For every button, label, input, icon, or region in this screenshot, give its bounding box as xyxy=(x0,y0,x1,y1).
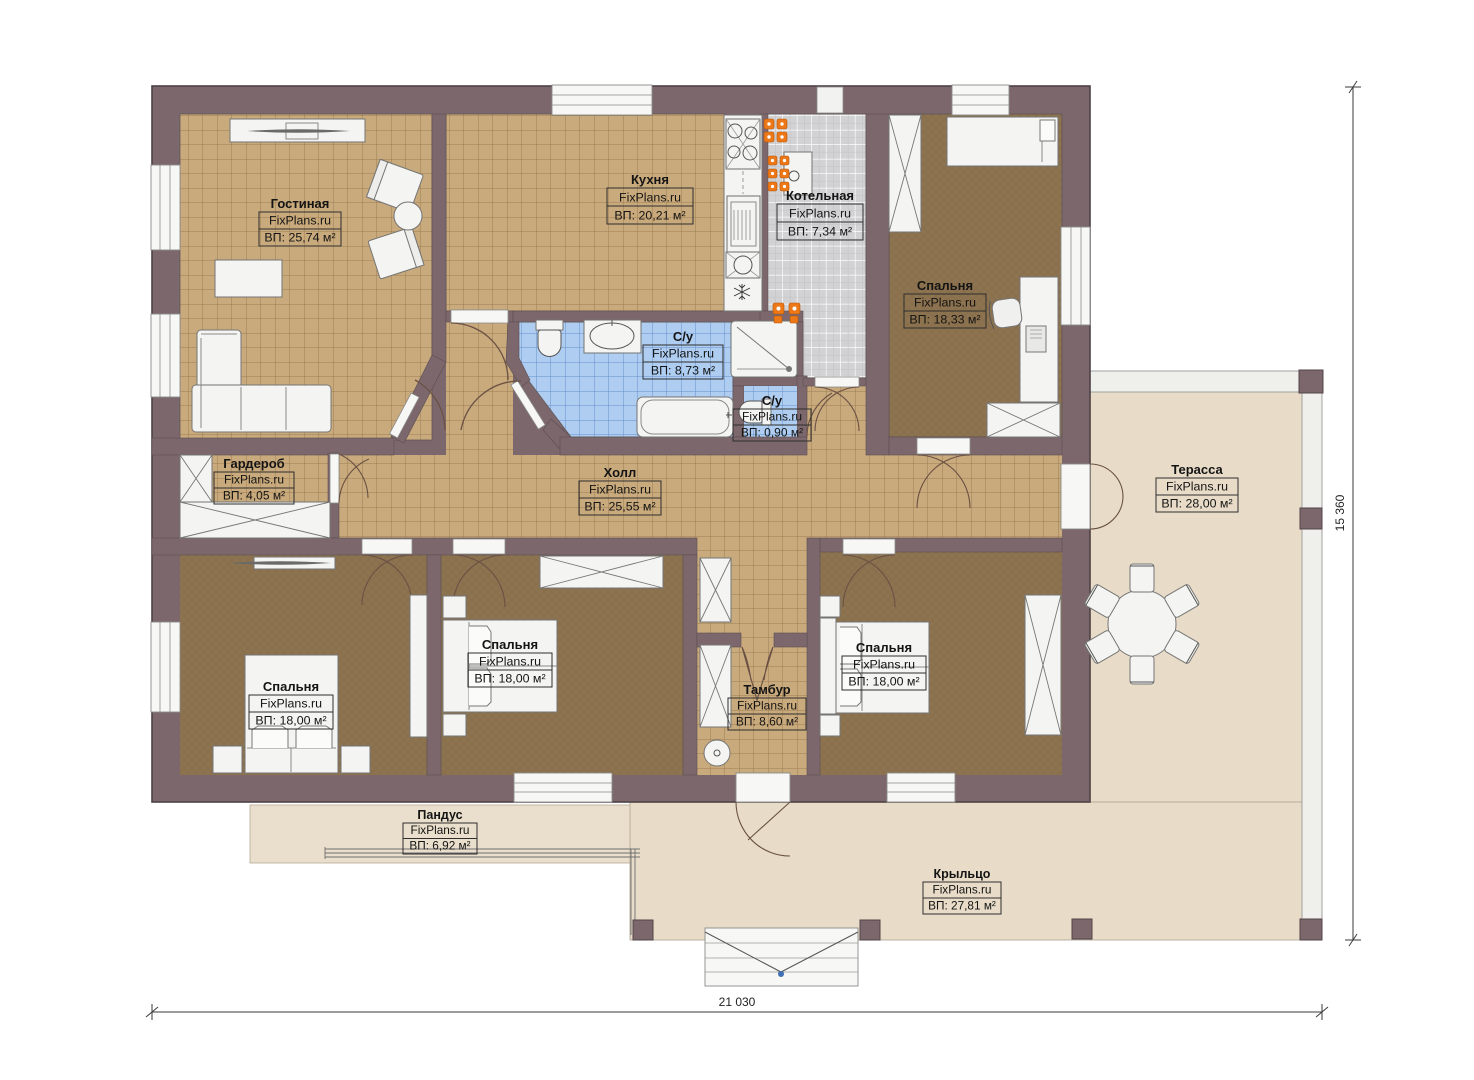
svg-text:FixPlans.ru: FixPlans.ru xyxy=(1166,480,1228,494)
svg-text:FixPlans.ru: FixPlans.ru xyxy=(789,207,851,221)
svg-text:С/у: С/у xyxy=(762,393,783,408)
svg-text:FixPlans.ru: FixPlans.ru xyxy=(589,483,651,497)
svg-text:ВП: 25,74 м²: ВП: 25,74 м² xyxy=(264,231,335,245)
svg-text:FixPlans.ru: FixPlans.ru xyxy=(260,697,322,711)
svg-text:ВП: 7,34 м²: ВП: 7,34 м² xyxy=(788,225,852,239)
svg-text:Спальня: Спальня xyxy=(917,278,973,293)
svg-text:С/у: С/у xyxy=(673,329,694,344)
svg-text:Холл: Холл xyxy=(604,465,637,480)
svg-text:Гостиная: Гостиная xyxy=(271,196,330,211)
svg-text:ВП: 18,00 м²: ВП: 18,00 м² xyxy=(848,675,919,689)
svg-text:15 360: 15 360 xyxy=(1333,494,1347,531)
svg-text:ВП: 8,60 м²: ВП: 8,60 м² xyxy=(736,715,798,729)
svg-text:ВП: 28,00 м²: ВП: 28,00 м² xyxy=(1161,497,1232,511)
svg-text:ВП: 0,90 м²: ВП: 0,90 м² xyxy=(741,426,803,440)
svg-text:ВП: 18,00 м²: ВП: 18,00 м² xyxy=(474,672,545,686)
svg-text:Гардероб: Гардероб xyxy=(223,456,284,471)
svg-text:ВП: 20,21 м²: ВП: 20,21 м² xyxy=(614,209,685,223)
svg-text:Котельная: Котельная xyxy=(786,188,854,203)
svg-text:Кухня: Кухня xyxy=(631,172,669,187)
svg-text:ВП: 27,81 м²: ВП: 27,81 м² xyxy=(928,899,996,913)
svg-text:Спальня: Спальня xyxy=(856,640,912,655)
svg-text:Терасса: Терасса xyxy=(1171,462,1223,477)
svg-text:FixPlans.ru: FixPlans.ru xyxy=(932,883,991,897)
svg-text:FixPlans.ru: FixPlans.ru xyxy=(737,699,797,713)
svg-text:ВП: 18,33 м²: ВП: 18,33 м² xyxy=(909,313,980,327)
svg-text:FixPlans.ru: FixPlans.ru xyxy=(410,823,469,837)
svg-text:FixPlans.ru: FixPlans.ru xyxy=(479,655,541,669)
svg-text:FixPlans.ru: FixPlans.ru xyxy=(742,410,802,424)
svg-text:FixPlans.ru: FixPlans.ru xyxy=(652,347,714,361)
svg-text:FixPlans.ru: FixPlans.ru xyxy=(619,191,681,205)
svg-text:FixPlans.ru: FixPlans.ru xyxy=(914,296,976,310)
svg-text:ВП: 8,73 м²: ВП: 8,73 м² xyxy=(651,364,715,378)
svg-text:ВП: 25,55 м²: ВП: 25,55 м² xyxy=(584,500,655,514)
svg-text:21 030: 21 030 xyxy=(719,995,756,1009)
svg-text:Крыльцо: Крыльцо xyxy=(934,867,991,881)
svg-text:ВП: 4,05 м²: ВП: 4,05 м² xyxy=(223,489,285,503)
svg-text:ВП: 18,00 м²: ВП: 18,00 м² xyxy=(255,714,326,728)
svg-text:FixPlans.ru: FixPlans.ru xyxy=(269,214,331,228)
svg-text:Спальня: Спальня xyxy=(263,679,319,694)
svg-text:Пандус: Пандус xyxy=(417,808,462,822)
svg-text:FixPlans.ru: FixPlans.ru xyxy=(224,473,284,487)
svg-text:Спальня: Спальня xyxy=(482,637,538,652)
svg-text:ВП: 6,92 м²: ВП: 6,92 м² xyxy=(409,839,470,853)
svg-text:FixPlans.ru: FixPlans.ru xyxy=(853,658,915,672)
svg-text:Тамбур: Тамбур xyxy=(743,682,790,697)
